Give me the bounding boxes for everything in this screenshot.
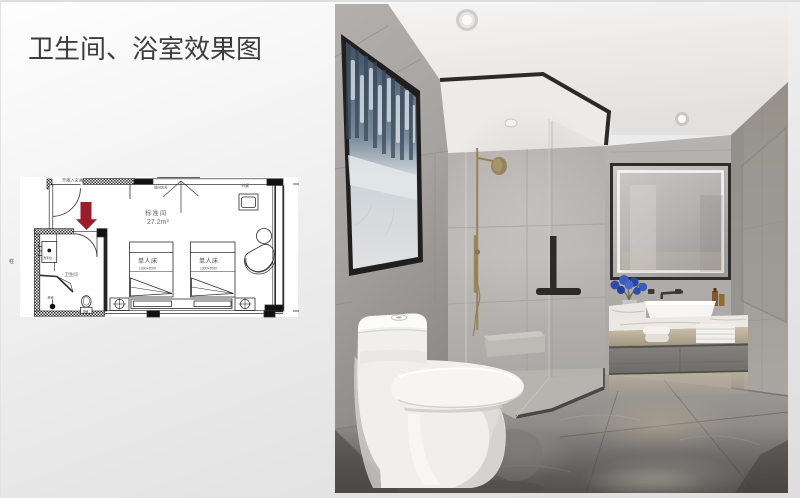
svg-text:淋浴: 淋浴 xyxy=(48,295,54,300)
svg-text:书桌: 书桌 xyxy=(241,182,249,188)
svg-text:单人床: 单人床 xyxy=(138,257,158,265)
svg-text:进向玄关: 进向玄关 xyxy=(154,185,168,190)
svg-text:27.2m²: 27.2m² xyxy=(147,219,169,226)
svg-text:洗手台: 洗手台 xyxy=(43,255,52,260)
svg-text:单人床: 单人床 xyxy=(199,257,219,265)
svg-text:1300×2000: 1300×2000 xyxy=(139,267,156,271)
svg-text:马桶: 马桶 xyxy=(83,310,89,314)
svg-text:1300×2000: 1300×2000 xyxy=(200,267,217,271)
svg-text:开敞入玄关: 开敞入玄关 xyxy=(62,177,83,184)
svg-text:标准间: 标准间 xyxy=(145,208,167,217)
svg-text:卫生间: 卫生间 xyxy=(65,271,78,278)
